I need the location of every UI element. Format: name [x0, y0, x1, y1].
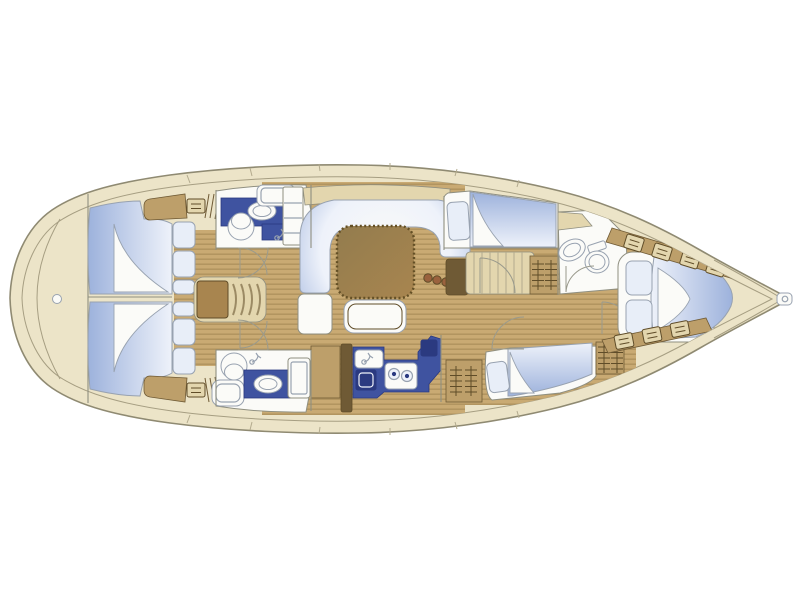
- hanger-icon: [465, 366, 477, 396]
- companionway-landing: [197, 281, 228, 318]
- pillow: [173, 222, 195, 248]
- pillow: [447, 201, 471, 240]
- pillow: [173, 319, 195, 345]
- pillow: [486, 361, 510, 393]
- pillow: [173, 302, 195, 316]
- yacht-floor-plan-page: Sailing yacht interior accommodation pla…: [0, 0, 800, 600]
- pillow: [173, 348, 195, 374]
- top-load-fridge: [421, 340, 437, 356]
- galley-cabinet: [311, 346, 340, 398]
- saloon-table: [337, 226, 414, 298]
- hanger-icon: [450, 366, 462, 396]
- stove: [385, 363, 417, 389]
- toilet-forward: [585, 240, 609, 273]
- locker-box-icon: [187, 199, 205, 213]
- hanger-icon: [545, 260, 557, 290]
- yacht-floor-plan: Sailing yacht interior accommodation pla…: [0, 0, 800, 600]
- stem-fitting: [777, 293, 792, 305]
- locker-box-icon: [187, 383, 205, 397]
- pillow: [626, 261, 652, 295]
- chart-table: Chart table / navigation locker: [446, 259, 468, 295]
- galley-partition: [341, 344, 352, 412]
- washbasin-starboard-bowl: [259, 379, 277, 390]
- toilet-port: [228, 213, 254, 240]
- bench-seat: [344, 300, 406, 333]
- pillow: [173, 280, 195, 294]
- companionway: Companionway steps between the aft cabin…: [194, 277, 266, 322]
- washbasin-port-bowl: [253, 206, 271, 217]
- side-table-left: [298, 294, 332, 334]
- cabin-sole-panel: [466, 252, 534, 294]
- pillow: [173, 251, 195, 277]
- toilet-starboard: [221, 353, 247, 380]
- stern-deck-fitting: [53, 295, 62, 304]
- burner: [392, 372, 395, 375]
- burner: [405, 374, 408, 377]
- hanger-icon: [532, 260, 544, 290]
